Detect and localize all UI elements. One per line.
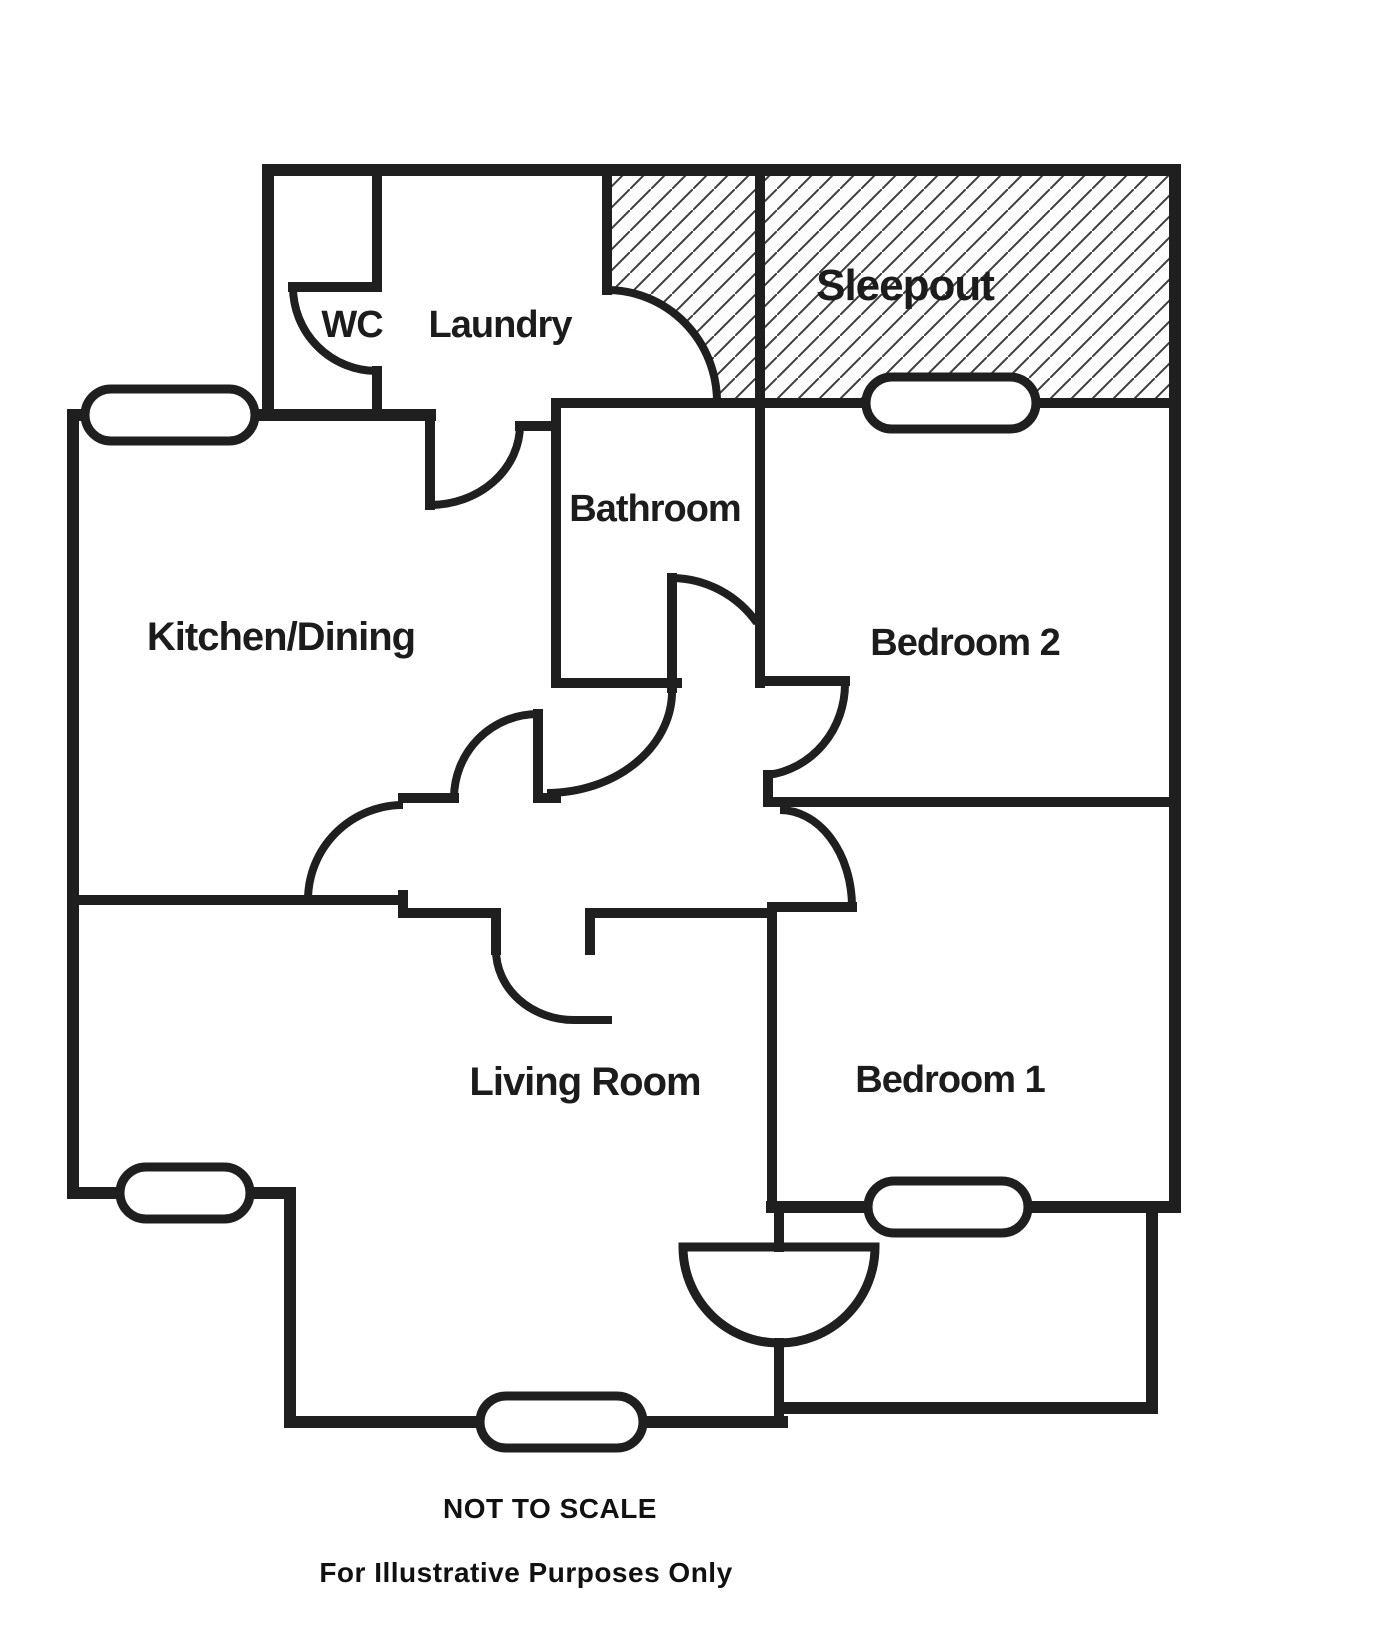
room-laundry xyxy=(377,170,607,415)
label-bedroom1: Bedroom 1 xyxy=(855,1059,1045,1101)
window-living-left xyxy=(120,1167,250,1219)
room-wc xyxy=(268,170,377,415)
label-laundry: Laundry xyxy=(429,304,573,346)
label-sleepout: Sleepout xyxy=(816,261,995,310)
room-bathroom xyxy=(556,403,760,683)
footer-notes: NOT TO SCALE For Illustrative Purposes O… xyxy=(319,1493,732,1588)
floor-plan-page: WC Laundry Sleepout Bathroom Kitchen/Din… xyxy=(0,0,1384,1645)
room-bedroom1 xyxy=(772,802,1175,1207)
disclaimer-note: For Illustrative Purposes Only xyxy=(319,1557,732,1588)
window-living-bottom xyxy=(480,1396,643,1448)
label-kitchen-dining: Kitchen/Dining xyxy=(147,615,415,659)
window-bedroom1-bottom xyxy=(868,1181,1028,1233)
window-sleepout-bottom xyxy=(866,377,1036,429)
hall-door-arc xyxy=(547,688,672,793)
label-bathroom: Bathroom xyxy=(569,488,740,530)
window-kitchen-top xyxy=(85,389,255,441)
not-to-scale-note: NOT TO SCALE xyxy=(443,1493,657,1524)
label-living-room: Living Room xyxy=(469,1060,700,1104)
label-bedroom2: Bedroom 2 xyxy=(870,622,1059,664)
floor-plan-drawing: WC Laundry Sleepout Bathroom Kitchen/Din… xyxy=(0,0,1384,1645)
label-wc: WC xyxy=(321,304,383,346)
